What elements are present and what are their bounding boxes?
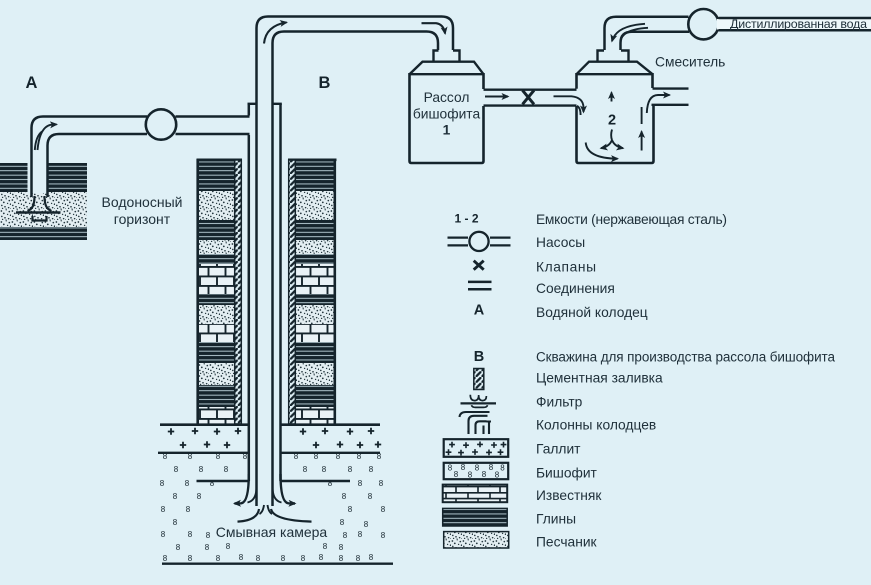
svg-text:8: 8: [356, 554, 361, 563]
svg-text:Смеситель: Смеситель: [655, 55, 725, 70]
svg-text:8: 8: [256, 554, 261, 563]
svg-text:8: 8: [188, 530, 193, 539]
svg-text:8: 8: [475, 464, 480, 473]
svg-text:Соединения: Соединения: [536, 281, 615, 296]
svg-text:8: 8: [461, 463, 466, 472]
svg-text:8: 8: [340, 518, 345, 527]
svg-text:8: 8: [369, 553, 374, 562]
svg-text:Колонны колодцев: Колонны колодцев: [536, 418, 656, 433]
svg-text:8: 8: [379, 479, 384, 488]
svg-text:Дистиллированная вода: Дистиллированная вода: [730, 17, 867, 31]
svg-text:8: 8: [368, 492, 373, 501]
svg-text:A: A: [26, 74, 38, 92]
svg-text:8: 8: [322, 465, 327, 474]
svg-text:Цементная заливка: Цементная заливка: [536, 371, 663, 386]
svg-text:8: 8: [336, 452, 341, 461]
svg-text:Глины: Глины: [536, 512, 576, 527]
svg-text:8: 8: [185, 479, 190, 488]
svg-text:8: 8: [489, 463, 494, 472]
svg-text:8: 8: [381, 531, 386, 540]
svg-text:8: 8: [303, 465, 308, 474]
svg-text:8: 8: [314, 452, 319, 461]
svg-text:8: 8: [348, 465, 353, 474]
svg-text:8: 8: [216, 554, 221, 563]
svg-text:Смывная камера: Смывная камера: [216, 524, 328, 540]
svg-text:8: 8: [364, 520, 369, 529]
svg-text:8: 8: [500, 464, 505, 473]
svg-text:8: 8: [381, 505, 386, 514]
svg-text:Фильтр: Фильтр: [536, 395, 583, 410]
svg-text:B: B: [319, 74, 331, 92]
svg-text:8: 8: [294, 452, 299, 461]
svg-text:8: 8: [301, 554, 306, 563]
svg-text:8: 8: [468, 470, 473, 479]
svg-text:8: 8: [482, 470, 487, 479]
svg-text:8: 8: [216, 452, 221, 461]
svg-text:8: 8: [188, 452, 193, 461]
svg-text:8: 8: [323, 542, 328, 551]
svg-text:8: 8: [226, 542, 231, 551]
svg-text:8: 8: [243, 452, 248, 461]
svg-text:8: 8: [342, 492, 347, 501]
svg-text:8: 8: [210, 479, 215, 488]
svg-text:8: 8: [205, 543, 210, 552]
svg-text:8: 8: [186, 505, 191, 514]
svg-text:8: 8: [348, 505, 353, 514]
svg-text:1 - 2: 1 - 2: [454, 212, 478, 226]
svg-text:8: 8: [224, 465, 229, 474]
svg-text:8: 8: [163, 452, 168, 461]
svg-text:8: 8: [328, 479, 333, 488]
svg-text:8: 8: [281, 554, 286, 563]
svg-text:8: 8: [377, 452, 382, 461]
svg-text:A: A: [474, 303, 485, 319]
svg-text:8: 8: [161, 505, 166, 514]
svg-text:8: 8: [199, 465, 204, 474]
svg-text:8: 8: [239, 553, 244, 562]
svg-text:Емкости (нержавеющая сталь): Емкости (нержавеющая сталь): [536, 212, 727, 227]
svg-text:8: 8: [357, 452, 362, 461]
svg-text:Водоносный: Водоносный: [102, 194, 183, 210]
svg-text:Клапаны: Клапаны: [536, 260, 596, 275]
svg-text:Насосы: Насосы: [536, 235, 585, 250]
svg-text:Водяной колодец: Водяной колодец: [536, 305, 648, 320]
svg-text:Скважина для производства расс: Скважина для производства рассола бишофи…: [536, 350, 835, 365]
svg-text:8: 8: [339, 543, 344, 552]
svg-text:бишофита: бишофита: [413, 107, 481, 122]
svg-text:8: 8: [174, 465, 179, 474]
svg-text:8: 8: [369, 465, 374, 474]
svg-text:8: 8: [495, 470, 500, 479]
svg-text:8: 8: [163, 554, 168, 563]
svg-text:B: B: [474, 349, 484, 365]
svg-text:8: 8: [358, 530, 363, 539]
svg-text:8: 8: [448, 464, 453, 473]
svg-text:горизонт: горизонт: [114, 211, 171, 227]
svg-text:Песчаник: Песчаник: [536, 535, 598, 550]
svg-text:8: 8: [173, 492, 178, 501]
svg-text:1: 1: [443, 123, 451, 138]
svg-text:8: 8: [206, 531, 211, 540]
svg-text:8: 8: [319, 553, 324, 562]
svg-text:8: 8: [161, 530, 166, 539]
svg-text:8: 8: [454, 470, 459, 479]
svg-text:Галлит: Галлит: [536, 442, 581, 457]
svg-text:8: 8: [339, 554, 344, 563]
svg-text:8: 8: [358, 479, 363, 488]
svg-text:2: 2: [608, 113, 616, 129]
svg-text:Рассол: Рассол: [424, 90, 470, 105]
svg-text:Известняк: Известняк: [536, 488, 602, 503]
svg-text:8: 8: [160, 479, 165, 488]
svg-text:8: 8: [197, 492, 202, 501]
svg-text:Бишофит: Бишофит: [536, 466, 598, 481]
svg-text:8: 8: [176, 543, 181, 552]
svg-text:8: 8: [173, 518, 178, 527]
svg-text:8: 8: [188, 554, 193, 563]
svg-text:8: 8: [343, 531, 348, 540]
